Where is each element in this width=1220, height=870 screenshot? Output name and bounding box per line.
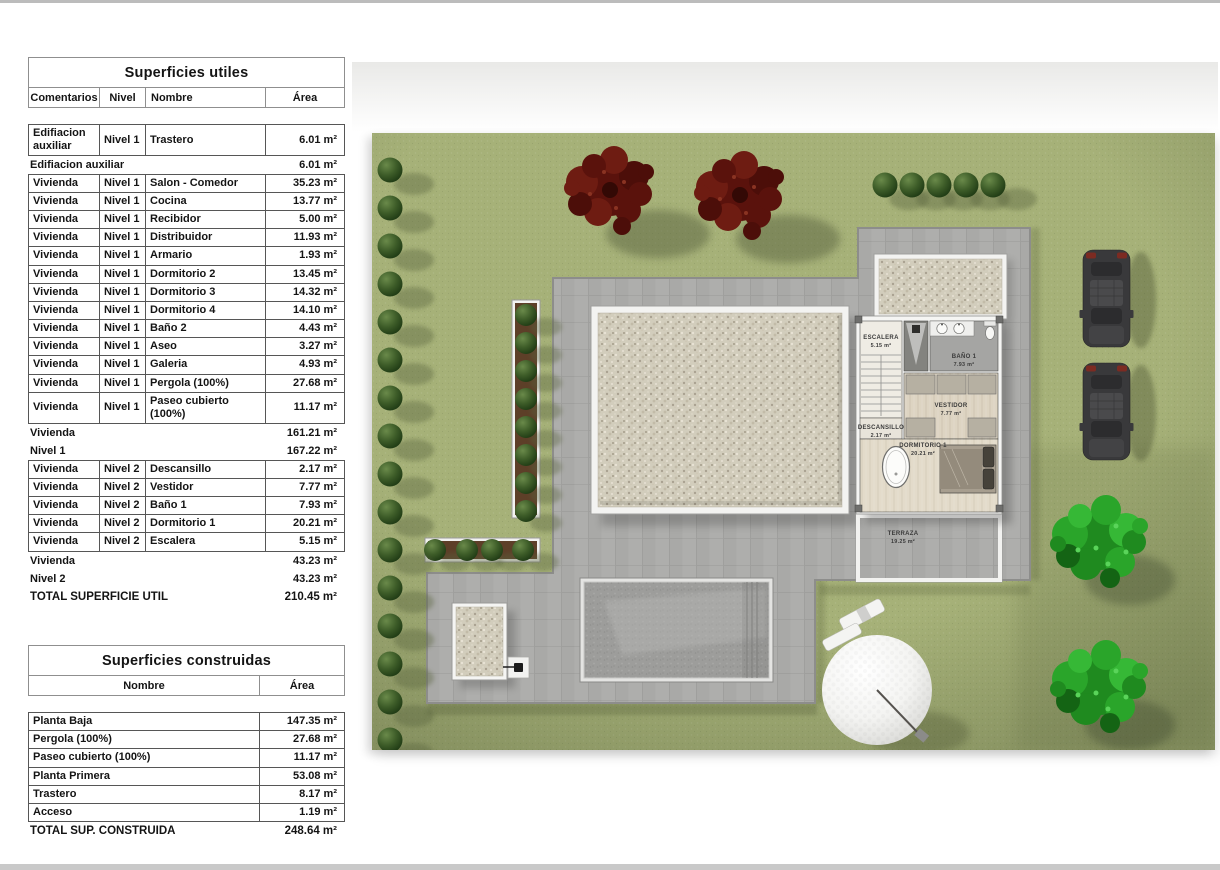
toilet-icon — [986, 327, 995, 340]
table-row: Pergola (100%)27.68 m² — [28, 730, 345, 749]
room-area-dormitorio1: 20.21 m² — [911, 451, 935, 457]
cell: 27.68 m² — [259, 731, 344, 748]
page-top-rule — [0, 0, 1220, 3]
cell: Vivienda — [29, 461, 99, 478]
table-row: Acceso1.19 m² — [28, 803, 345, 822]
column-header: Área — [265, 88, 344, 107]
cell: Nivel 1 — [99, 211, 145, 228]
room-label-escalera: ESCALERA — [863, 335, 899, 341]
summary-row: Edifiacion auxiliar6.01 m² — [28, 156, 345, 174]
car — [1080, 363, 1157, 461]
cell: Nivel 1 — [99, 229, 145, 246]
cell: Nivel 1 — [99, 193, 145, 210]
cell: Vivienda — [29, 247, 99, 264]
cell: Vivienda — [29, 533, 99, 550]
cell: Aseo — [145, 338, 265, 355]
cell: Vivienda — [29, 479, 99, 496]
cell: 1.19 m² — [259, 804, 344, 821]
cell: Nivel 2 — [99, 515, 145, 532]
cell: 14.32 m² — [265, 284, 344, 301]
column-header: Área — [259, 676, 344, 695]
cell: Vestidor — [145, 479, 265, 496]
cell: Vivienda — [29, 375, 99, 392]
cell: 8.17 m² — [259, 786, 344, 803]
cell: Armario — [145, 247, 265, 264]
table-title: Superficies construidas — [28, 645, 345, 676]
summary-area: 167.22 m² — [287, 445, 344, 458]
cell: Pergola (100%) — [145, 375, 265, 392]
table-row: ViviendaNivel 1Salon - Comedor35.23 m² — [28, 174, 345, 193]
cell: Nivel 2 — [99, 461, 145, 478]
shower — [904, 321, 928, 371]
cell: Dormitorio 2 — [145, 266, 265, 283]
cell: Nivel 2 — [99, 533, 145, 550]
table-row: Planta Baja147.35 m² — [28, 712, 345, 731]
plan-image-margin: ESCALERA 5.15 m² BAÑO 1 7.93 m² DESCANSI… — [352, 62, 1218, 750]
cell: Recibidor — [145, 211, 265, 228]
cell: Nivel 1 — [99, 247, 145, 264]
cell: Nivel 2 — [99, 497, 145, 514]
cell: Nivel 1 — [99, 302, 145, 319]
cell: 4.43 m² — [265, 320, 344, 337]
superficies-construidas-table: Superficies construidas NombreÁrea Plant… — [28, 645, 345, 841]
table-row: ViviendaNivel 2Vestidor7.77 m² — [28, 478, 345, 497]
summary-row: Nivel 243.23 m² — [28, 570, 345, 588]
access-icon — [514, 663, 523, 672]
page-bottom-rule — [0, 864, 1220, 870]
table-row: ViviendaNivel 1Dormitorio 414.10 m² — [28, 301, 345, 320]
column-header: Nivel — [99, 88, 145, 107]
room-label-vestidor: VESTIDOR — [934, 403, 967, 409]
table-row: ViviendaNivel 2Dormitorio 120.21 m² — [28, 514, 345, 533]
summary-area: 43.23 m² — [293, 573, 344, 586]
table-row: Paseo cubierto (100%)11.17 m² — [28, 748, 345, 767]
site-plan: ESCALERA 5.15 m² BAÑO 1 7.93 m² DESCANSI… — [372, 133, 1215, 750]
cell: 5.15 m² — [265, 533, 344, 550]
cell: 27.68 m² — [265, 375, 344, 392]
table-row: Trastero8.17 m² — [28, 785, 345, 804]
cell: Vivienda — [29, 175, 99, 192]
room-area-terraza: 19.25 m² — [891, 539, 915, 545]
room-label-descansillo: DESCANSILLO — [858, 425, 904, 431]
cell: Vivienda — [29, 497, 99, 514]
table-row: ViviendaNivel 1Galeria4.93 m² — [28, 355, 345, 374]
cell: Baño 2 — [145, 320, 265, 337]
cell: Nivel 1 — [99, 320, 145, 337]
cell: Descansillo — [145, 461, 265, 478]
cell: 13.45 m² — [265, 266, 344, 283]
cell: Nivel 1 — [99, 266, 145, 283]
table-row: ViviendaNivel 1Recibidor5.00 m² — [28, 210, 345, 229]
cell: Baño 1 — [145, 497, 265, 514]
cell: 1.93 m² — [265, 247, 344, 264]
cell: Nivel 1 — [99, 175, 145, 192]
summary-label: Edifiacion auxiliar — [30, 159, 124, 172]
cell: 7.77 m² — [265, 479, 344, 496]
table-row: ViviendaNivel 1Baño 24.43 m² — [28, 319, 345, 338]
table-row: Edifiacion auxiliarNivel 1Trastero6.01 m… — [28, 124, 345, 156]
summary-area: 161.21 m² — [287, 427, 344, 440]
cell: 11.93 m² — [265, 229, 344, 246]
trastero — [452, 603, 515, 688]
cell: 53.08 m² — [259, 768, 344, 785]
summary-row: Vivienda161.21 m² — [28, 424, 345, 442]
table-header-row: ComentariosNivelNombreÁrea — [28, 88, 345, 108]
cell: Trastero — [29, 786, 259, 803]
cell: 20.21 m² — [265, 515, 344, 532]
cell: Vivienda — [29, 393, 99, 423]
cell: Vivienda — [29, 338, 99, 355]
room-dormitorio1 — [860, 439, 998, 512]
cell: 7.93 m² — [265, 497, 344, 514]
cell: Edifiacion auxiliar — [29, 125, 99, 155]
upper-floor-plan: ESCALERA 5.15 m² BAÑO 1 7.93 m² DESCANSI… — [855, 316, 1012, 524]
cell: Vivienda — [29, 229, 99, 246]
superficies-utiles-table: Superficies utiles ComentariosNivelNombr… — [28, 57, 345, 607]
summary-label: Nivel 1 — [30, 445, 65, 458]
table-row: ViviendaNivel 1Cocina13.77 m² — [28, 192, 345, 211]
cell: Nivel 1 — [99, 375, 145, 392]
table-row: ViviendaNivel 1Dormitorio 314.32 m² — [28, 283, 345, 302]
cell: Dormitorio 3 — [145, 284, 265, 301]
cell: Vivienda — [29, 302, 99, 319]
room-area-descansillo: 2.17 m² — [871, 433, 892, 439]
room-label-banio1: BAÑO 1 — [952, 353, 977, 360]
cell: 11.17 m² — [259, 749, 344, 766]
room-area-escalera: 5.15 m² — [871, 343, 892, 349]
cell: 4.93 m² — [265, 356, 344, 373]
cell: 2.17 m² — [265, 461, 344, 478]
cell: Galeria — [145, 356, 265, 373]
summary-label: Nivel 2 — [30, 573, 65, 586]
cell: Paseo cubierto (100%) — [145, 393, 265, 423]
cell: Escalera — [145, 533, 265, 550]
summary-label: Vivienda — [30, 427, 75, 440]
cell: Salon - Comedor — [145, 175, 265, 192]
room-label-dormitorio1: DORMITORIO 1 — [899, 443, 947, 449]
cell: Vivienda — [29, 356, 99, 373]
room-label-terraza: TERRAZA — [888, 531, 919, 537]
cell: Nivel 1 — [99, 284, 145, 301]
table-row: ViviendaNivel 2Baño 17.93 m² — [28, 496, 345, 515]
table-title: Superficies utiles — [28, 57, 345, 88]
cell: Distribuidor — [145, 229, 265, 246]
room-area-vestidor: 7.77 m² — [941, 411, 962, 417]
table-body: Planta Baja147.35 m²Pergola (100%)27.68 … — [28, 712, 345, 841]
cell: Vivienda — [29, 284, 99, 301]
cell: Cocina — [145, 193, 265, 210]
table-row: ViviendaNivel 1Pergola (100%)27.68 m² — [28, 374, 345, 393]
total-row: TOTAL SUPERFICIE UTIL210.45 m² — [28, 588, 345, 607]
cell: 147.35 m² — [259, 713, 344, 730]
summary-label: Vivienda — [30, 555, 75, 568]
cell: Planta Baja — [29, 713, 259, 730]
cell: Trastero — [145, 125, 265, 155]
cell: 5.00 m² — [265, 211, 344, 228]
table-row: ViviendaNivel 1Dormitorio 213.45 m² — [28, 265, 345, 284]
summary-area: 6.01 m² — [299, 159, 344, 172]
table-row: ViviendaNivel 1Paseo cubierto (100%)11.1… — [28, 392, 345, 424]
cell: Pergola (100%) — [29, 731, 259, 748]
cell: Vivienda — [29, 515, 99, 532]
cell: Vivienda — [29, 266, 99, 283]
table-row: ViviendaNivel 1Distribuidor11.93 m² — [28, 228, 345, 247]
cell: Dormitorio 1 — [145, 515, 265, 532]
cell: 14.10 m² — [265, 302, 344, 319]
cell: Nivel 1 — [99, 125, 145, 155]
table-row: ViviendaNivel 2Escalera5.15 m² — [28, 532, 345, 551]
column-header: Comentarios — [29, 88, 99, 107]
summary-label: TOTAL SUP. CONSTRUIDA — [30, 825, 175, 839]
cell: Nivel 1 — [99, 356, 145, 373]
bathtub-icon — [883, 447, 910, 488]
cell: Nivel 2 — [99, 479, 145, 496]
cell: Nivel 1 — [99, 393, 145, 423]
cell: Paseo cubierto (100%) — [29, 749, 259, 766]
summary-label: TOTAL SUPERFICIE UTIL — [30, 591, 168, 605]
car — [1080, 250, 1157, 348]
cell: Vivienda — [29, 320, 99, 337]
bed-icon — [940, 445, 996, 493]
cell: 35.23 m² — [265, 175, 344, 192]
main-roof — [591, 306, 859, 526]
summary-row: Nivel 1167.22 m² — [28, 442, 345, 460]
column-header: Nombre — [145, 88, 265, 107]
pool — [580, 578, 773, 682]
upper-roof — [874, 254, 1013, 325]
room-area-banio1: 7.93 m² — [954, 362, 975, 368]
cell: Vivienda — [29, 193, 99, 210]
table-body: Edifiacion auxiliarNivel 1Trastero6.01 m… — [28, 124, 345, 607]
table-row: Planta Primera53.08 m² — [28, 767, 345, 786]
cell: Dormitorio 4 — [145, 302, 265, 319]
cell: 6.01 m² — [265, 125, 344, 155]
table-row: ViviendaNivel 1Armario1.93 m² — [28, 246, 345, 265]
table-row: ViviendaNivel 2Descansillo2.17 m² — [28, 460, 345, 479]
summary-area: 210.45 m² — [285, 591, 344, 605]
cell: 13.77 m² — [265, 193, 344, 210]
table-row: ViviendaNivel 1Aseo3.27 m² — [28, 337, 345, 356]
cell: Planta Primera — [29, 768, 259, 785]
total-row: TOTAL SUP. CONSTRUIDA248.64 m² — [28, 822, 345, 841]
cell: 11.17 m² — [265, 393, 344, 423]
summary-area: 248.64 m² — [285, 825, 344, 839]
cell: Acceso — [29, 804, 259, 821]
cell: Nivel 1 — [99, 338, 145, 355]
cell: Vivienda — [29, 211, 99, 228]
cell: 3.27 m² — [265, 338, 344, 355]
column-header: Nombre — [29, 676, 259, 695]
summary-row: Vivienda43.23 m² — [28, 552, 345, 570]
table-header-row: NombreÁrea — [28, 676, 345, 696]
summary-area: 43.23 m² — [293, 555, 344, 568]
